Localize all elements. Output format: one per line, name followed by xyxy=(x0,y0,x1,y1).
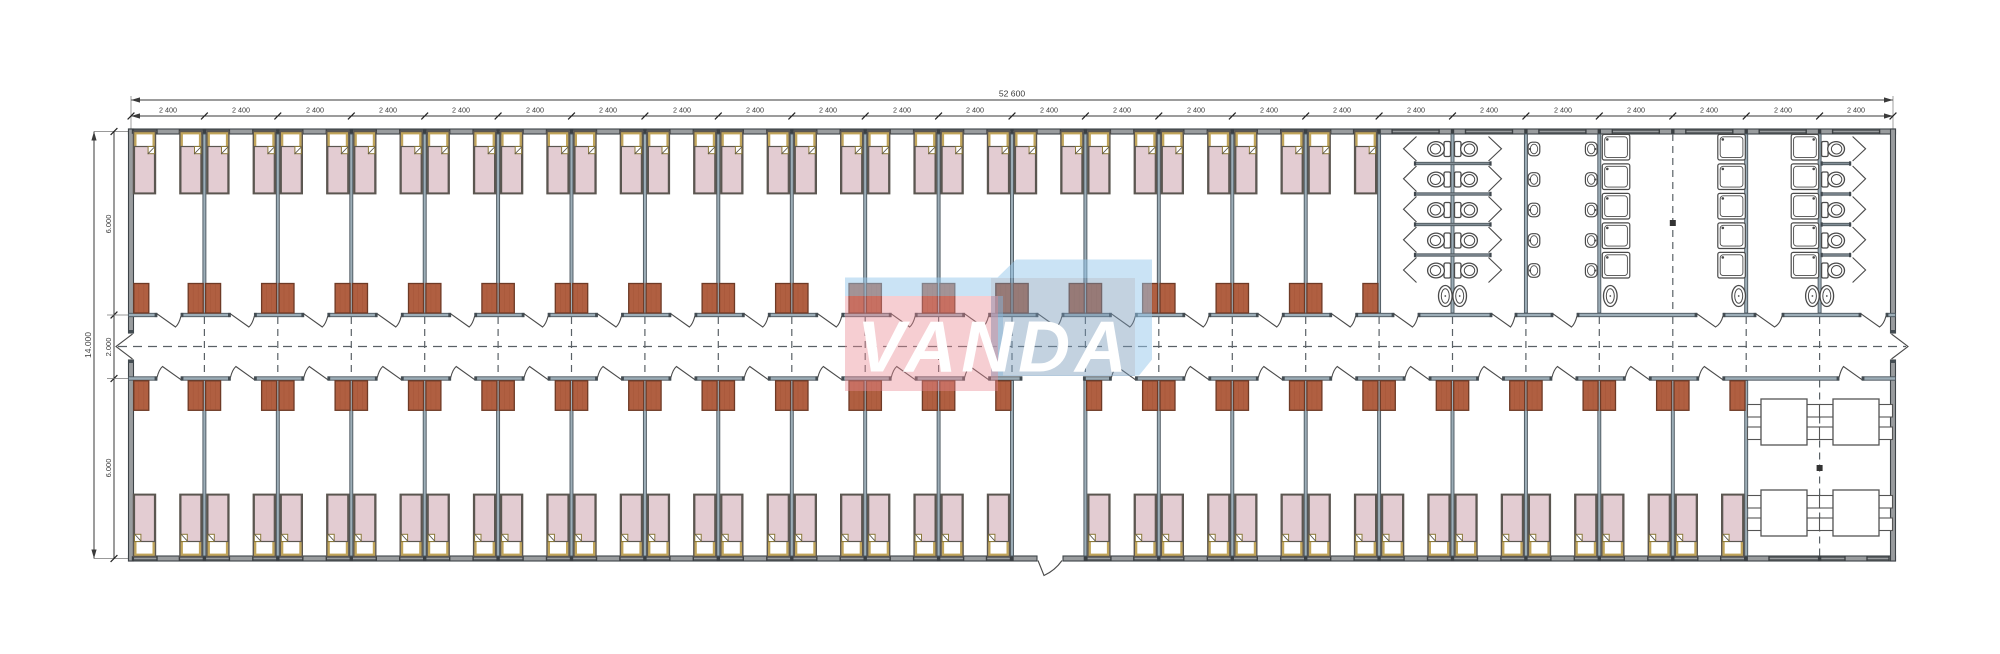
svg-text:2 400: 2 400 xyxy=(1113,106,1131,115)
svg-text:14.000: 14.000 xyxy=(83,332,93,358)
svg-text:2 400: 2 400 xyxy=(452,106,470,115)
svg-text:2 400: 2 400 xyxy=(526,106,544,115)
svg-text:6.000: 6.000 xyxy=(104,215,113,234)
svg-text:2 400: 2 400 xyxy=(1700,106,1718,115)
svg-text:2 400: 2 400 xyxy=(379,106,397,115)
svg-text:2 400: 2 400 xyxy=(1554,106,1572,115)
svg-text:2 400: 2 400 xyxy=(966,106,984,115)
svg-text:52 600: 52 600 xyxy=(999,89,1026,99)
svg-text:2 400: 2 400 xyxy=(1480,106,1498,115)
svg-text:2 400: 2 400 xyxy=(1333,106,1351,115)
svg-text:2 400: 2 400 xyxy=(1040,106,1058,115)
svg-text:2.000: 2.000 xyxy=(104,338,113,357)
svg-text:2 400: 2 400 xyxy=(1187,106,1205,115)
svg-text:2 400: 2 400 xyxy=(232,106,250,115)
svg-text:2 400: 2 400 xyxy=(1847,106,1865,115)
svg-text:VANDA: VANDA xyxy=(857,308,1132,388)
svg-text:6.000: 6.000 xyxy=(104,459,113,478)
svg-text:2 400: 2 400 xyxy=(599,106,617,115)
svg-text:2 400: 2 400 xyxy=(1407,106,1425,115)
svg-text:2 400: 2 400 xyxy=(819,106,837,115)
svg-text:2 400: 2 400 xyxy=(893,106,911,115)
svg-text:2 400: 2 400 xyxy=(306,106,324,115)
svg-text:2 400: 2 400 xyxy=(1627,106,1645,115)
svg-text:2 400: 2 400 xyxy=(159,106,177,115)
svg-text:2 400: 2 400 xyxy=(673,106,691,115)
svg-text:2 400: 2 400 xyxy=(746,106,764,115)
svg-text:2 400: 2 400 xyxy=(1774,106,1792,115)
svg-text:2 400: 2 400 xyxy=(1260,106,1278,115)
